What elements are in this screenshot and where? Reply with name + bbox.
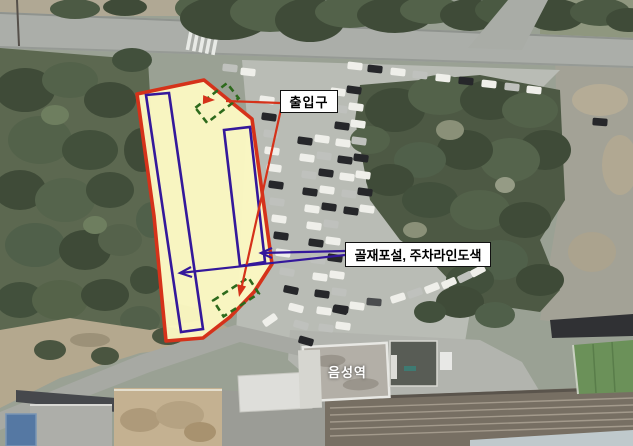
green-court [573, 340, 633, 394]
station-label: 음성역 [328, 362, 374, 378]
aerial-plan-view: 출입구 골재포설, 주차라인도색 음성역 [0, 0, 633, 446]
satellite-map [0, 0, 633, 446]
work-label: 골재포설, 주차라인도색 [345, 242, 491, 267]
entrance-label: 출입구 [280, 90, 338, 113]
